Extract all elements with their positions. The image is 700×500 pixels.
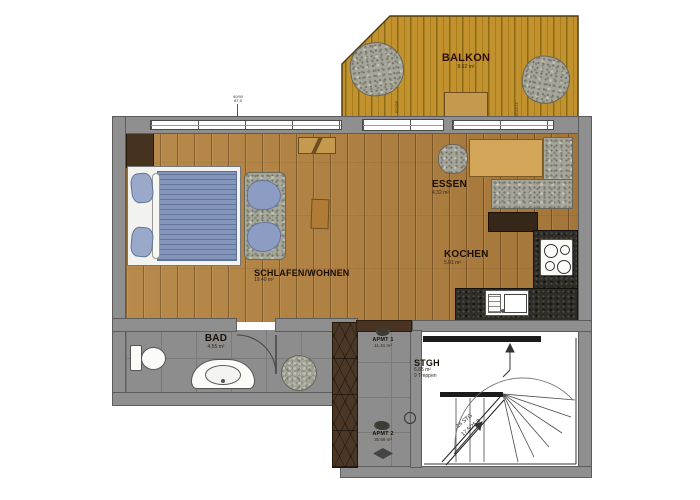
window-top-right	[452, 120, 554, 130]
dimension-tick	[237, 104, 238, 117]
dining-table	[469, 139, 543, 177]
bed-blanket-roll	[152, 173, 160, 259]
stair-landing-beam-mid	[440, 392, 503, 397]
window-top-left	[150, 120, 342, 130]
essen-name: ESSEN	[432, 179, 467, 191]
dining-stool	[438, 144, 468, 174]
kitchen-cabinet-dark	[488, 212, 538, 232]
pillow-bottom	[130, 226, 155, 258]
sideboard	[298, 137, 336, 154]
corridor-label-apmt1: APMT 1 11.41 m²	[358, 337, 408, 348]
balkon-area: 8.62 m²	[430, 65, 502, 71]
essen-area: 4.32 m²	[432, 191, 467, 197]
corridor-floor	[356, 330, 412, 468]
sink-drawers	[488, 294, 501, 313]
kochen-area: 5.01 m²	[444, 261, 489, 267]
dimension-top-window: 90/90 87,5	[222, 95, 254, 104]
dimension-right-window: 123/216	[514, 96, 518, 122]
built-in-closet	[332, 322, 358, 468]
ornament-icon	[374, 421, 390, 430]
dimension-balcony-door: 86/216	[394, 94, 398, 120]
wall-right	[578, 116, 592, 478]
sink-basin	[504, 294, 527, 313]
bathroom-door-swing	[126, 318, 334, 396]
stove-burners-icon	[541, 240, 574, 277]
balkon-name: BALKON	[430, 52, 502, 65]
schlafen-area: 19.40 m²	[254, 278, 350, 284]
room-label-schlafen-wohnen: SCHLAFEN/WOHNEN 19.40 m²	[254, 268, 350, 284]
wall-left	[112, 116, 126, 406]
corridor-label-apmt2: APMT 2 30.69 m²	[358, 431, 408, 442]
side-table	[310, 199, 329, 230]
balcony-door	[362, 119, 444, 131]
sink-faucet-icon	[501, 309, 505, 313]
dining-bench-horizontal	[491, 179, 573, 209]
up-arrow-icon	[503, 344, 514, 377]
kitchen-sink-unit	[485, 290, 529, 316]
room-label-kochen: KOCHEN 5.01 m²	[444, 249, 489, 266]
room-label-stgh: STGH 6.85 m² 9 Treppen	[414, 358, 440, 380]
apmt2-area: 30.69 m²	[358, 437, 408, 442]
room-label-balkon: BALKON 8.62 m²	[430, 52, 502, 70]
wardrobe	[126, 132, 154, 168]
balcony-table	[444, 92, 488, 118]
staircase: 16 STG 17,5/25,8	[422, 330, 580, 468]
stove	[540, 239, 573, 276]
dim-top-b: 87,5	[234, 98, 242, 103]
stair-stringer	[442, 397, 504, 465]
kochen-name: KOCHEN	[444, 249, 489, 261]
door-pivot-circle	[404, 412, 416, 424]
pillow-top	[129, 172, 154, 204]
bed-duvet	[157, 171, 237, 261]
floor-plan: BALKON 8.62 m² SCHLAFEN/WOHNEN 19.40 m² …	[0, 0, 700, 500]
apmt1-area: 11.41 m²	[358, 343, 408, 348]
wall-corridor-right	[410, 330, 422, 468]
stgh-note: 9 Treppen	[414, 374, 440, 380]
stair-landing-beam-top	[423, 336, 541, 342]
room-label-essen: ESSEN 4.32 m²	[432, 179, 467, 196]
armchair-top	[247, 180, 281, 210]
